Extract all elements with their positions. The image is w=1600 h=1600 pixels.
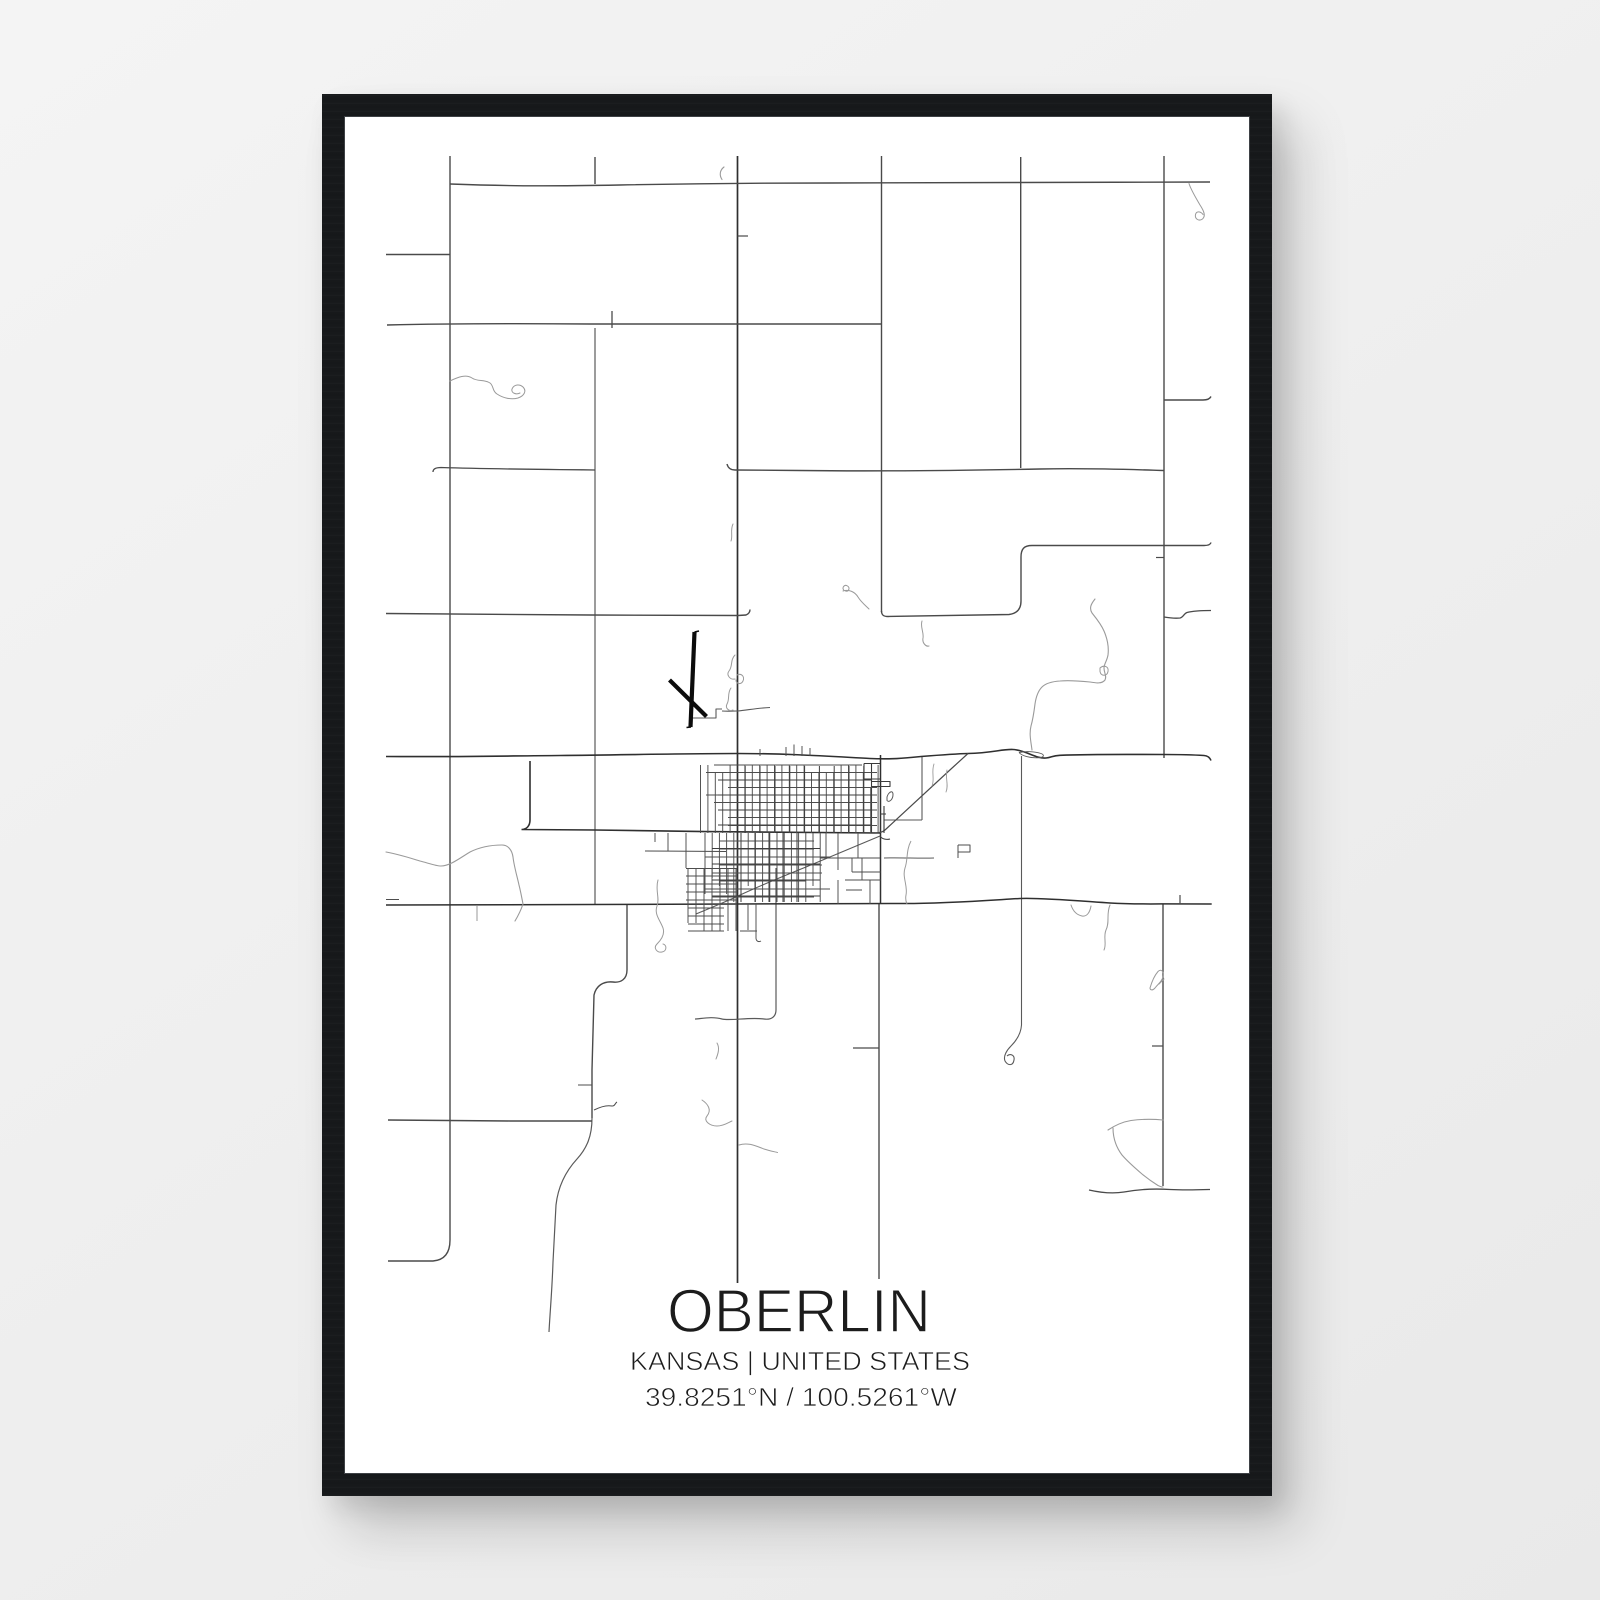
svg-text:39.8251°N / 100.5261°W: 39.8251°N / 100.5261°W	[645, 1382, 957, 1412]
svg-text:KANSAS | UNITED STATES: KANSAS | UNITED STATES	[630, 1346, 970, 1376]
svg-text:OBERLIN: OBERLIN	[667, 1277, 931, 1345]
